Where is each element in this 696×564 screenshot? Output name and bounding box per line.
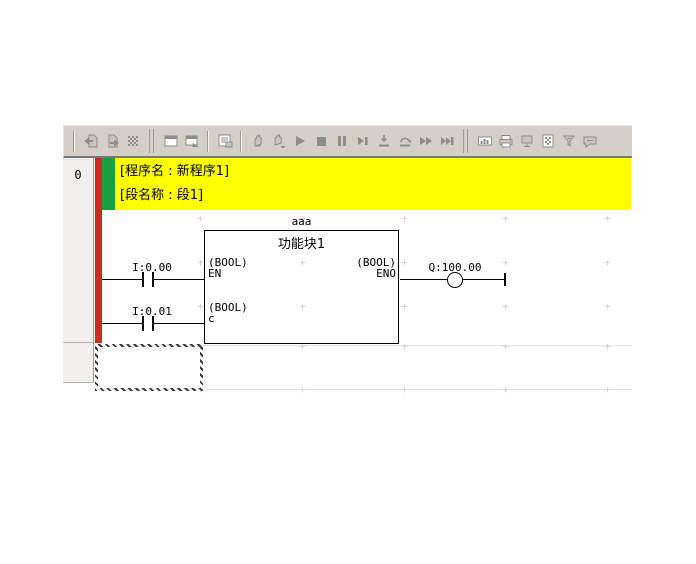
wire-end-tick [504, 273, 506, 286]
wire-out-left [400, 279, 447, 280]
scan-run-icon[interactable] [438, 133, 455, 150]
transfer-from-plc-icon[interactable] [103, 133, 120, 150]
output-coil[interactable] [447, 272, 463, 288]
simulation-toolbar [63, 125, 632, 158]
simulator-online-icon[interactable] [183, 133, 200, 150]
wire-en-left [102, 279, 142, 280]
grid-cross: + [603, 342, 612, 351]
gauge-window-icon[interactable] [476, 133, 493, 150]
grid-cross: + [400, 385, 409, 394]
cx-programmer-screen: 0 [程序名 : 新程序1] [段名称 : 段1] ++++++++++++++… [0, 0, 696, 564]
grid-cross: + [400, 214, 409, 223]
wire-out-right [463, 279, 505, 280]
rung-number: 0 [74, 168, 81, 182]
contact-1-label: I:0.00 [108, 261, 196, 274]
grid-cross: + [603, 214, 612, 223]
section-name-line: [段名称 : 段1] [120, 184, 631, 208]
pause-icon[interactable] [333, 133, 350, 150]
grid-cross: + [501, 342, 510, 351]
rung-comment-header[interactable]: [程序名 : 新程序1] [段名称 : 段1] [115, 158, 631, 210]
rung-number-cell[interactable]: 0 [63, 158, 93, 343]
run-icon[interactable] [291, 133, 308, 150]
grid-cross: + [501, 302, 510, 311]
grid-cross: + [603, 385, 612, 394]
wire-c-right [154, 323, 204, 324]
scan-pause-hand-icon[interactable] [270, 133, 287, 150]
filter-funnel-icon[interactable] [560, 133, 577, 150]
plc-print-icon[interactable] [497, 133, 514, 150]
grid-cross: + [603, 302, 612, 311]
program-name-line: [程序名 : 新程序1] [120, 160, 631, 184]
toolbar-separator [207, 131, 209, 152]
coil-label: Q:100.00 [407, 261, 503, 274]
pin-c-name: c [208, 313, 215, 325]
watch-window-icon[interactable] [216, 133, 233, 150]
step-over-icon[interactable] [396, 133, 413, 150]
grid-cross: + [400, 342, 409, 351]
grid-cross: + [501, 385, 510, 394]
simulator-window-icon[interactable] [162, 133, 179, 150]
step-run-icon[interactable] [354, 133, 371, 150]
left-bus-bar [95, 158, 102, 343]
grid-cross: + [298, 385, 307, 394]
comment-bubble-icon[interactable] [581, 133, 598, 150]
edit-cursor-cell[interactable] [95, 344, 203, 391]
contact-1-bar-left[interactable] [142, 272, 144, 287]
monitor-display-icon[interactable] [518, 133, 535, 150]
stop-icon[interactable] [312, 133, 329, 150]
toolbar-separator [240, 131, 242, 152]
grid-cross: + [501, 214, 510, 223]
function-block-title: 功能块1 [204, 233, 399, 252]
pattern-page-icon[interactable] [539, 133, 556, 150]
pin-eno-name: ENO [300, 268, 396, 280]
contact-2-bar-left[interactable] [142, 316, 144, 331]
pause-hand-icon[interactable] [249, 133, 266, 150]
toolbar-separator [73, 131, 75, 152]
wire-c-left [102, 323, 142, 324]
pin-en-name: EN [208, 268, 221, 280]
compile-mesh-icon[interactable] [124, 133, 141, 150]
rung-margin-column: 0 [63, 158, 94, 383]
toolbar-separator [463, 129, 468, 153]
grid-cross: + [603, 258, 612, 267]
toolbar-separator [149, 129, 154, 153]
function-block-instance-name: aaa [204, 215, 399, 228]
continuous-step-icon[interactable] [417, 133, 434, 150]
grid-cross: + [400, 302, 409, 311]
wire-en-right [154, 279, 204, 280]
rung-marker [102, 158, 115, 210]
step-in-icon[interactable] [375, 133, 392, 150]
contact-2-label: I:0.01 [108, 305, 196, 318]
transfer-to-plc-icon[interactable] [82, 133, 99, 150]
